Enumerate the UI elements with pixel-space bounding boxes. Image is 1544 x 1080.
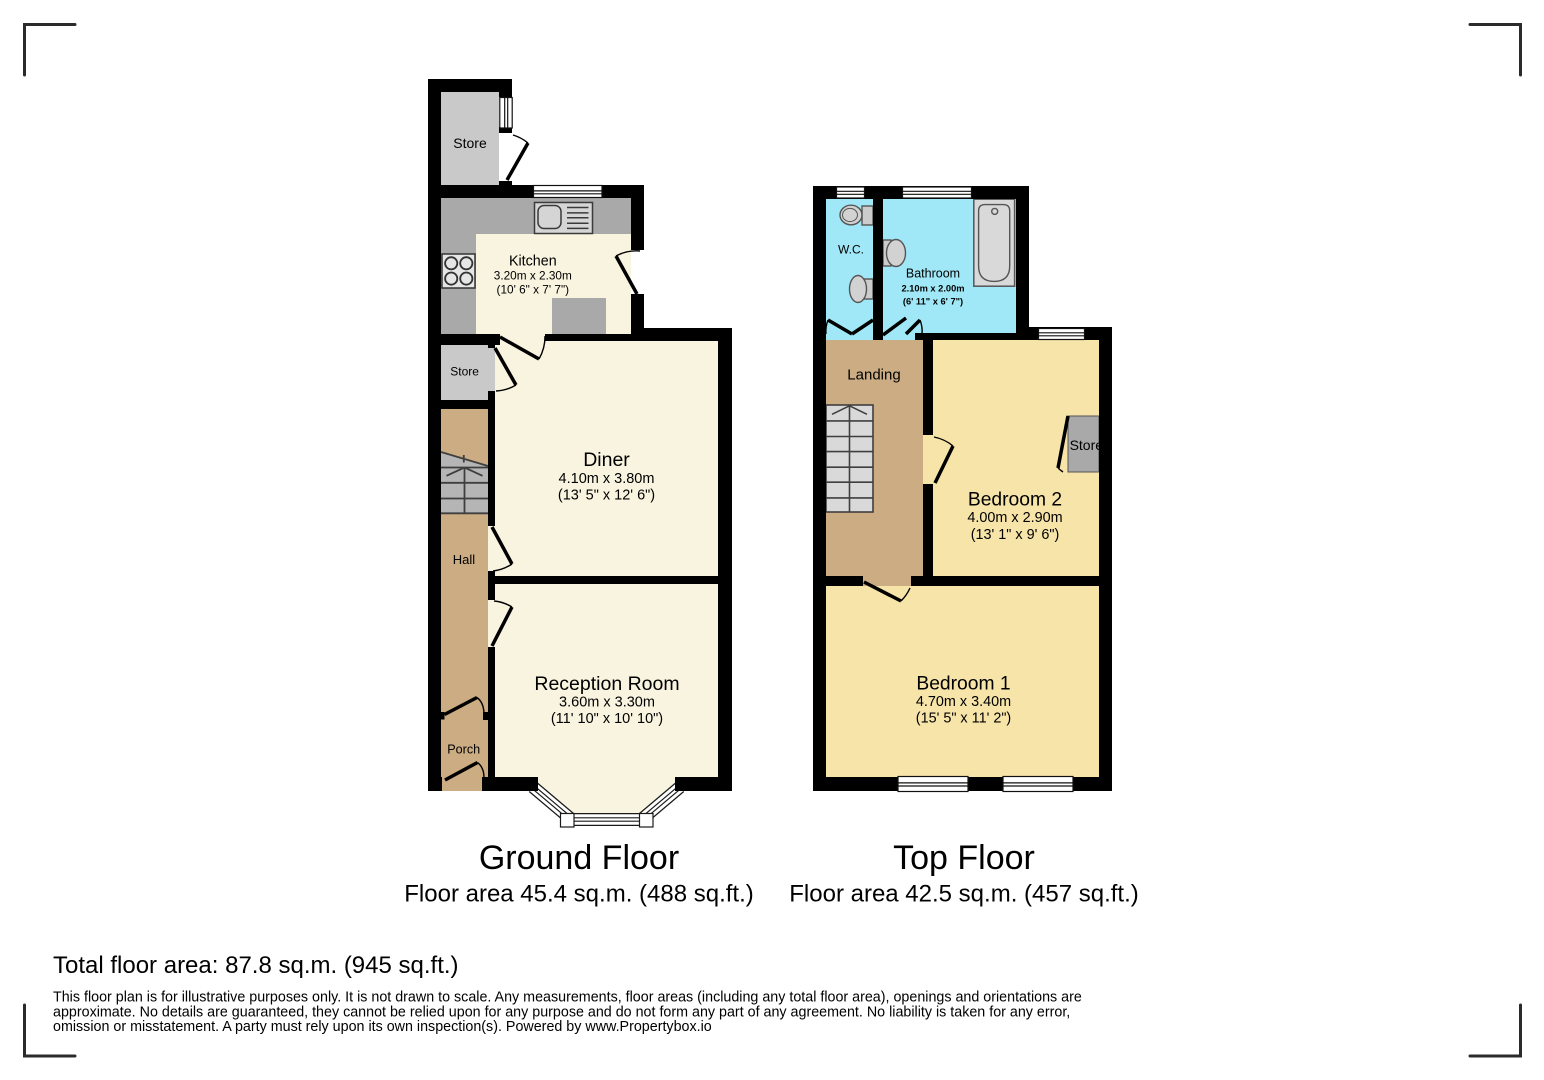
svg-text:(13' 5" x 12' 6"): (13' 5" x 12' 6")	[558, 488, 655, 504]
svg-text:Bedroom 2: Bedroom 2	[968, 490, 1062, 511]
svg-text:3.60m x 3.30m: 3.60m x 3.30m	[559, 694, 655, 710]
svg-text:Porch: Porch	[447, 743, 480, 757]
svg-text:Floor area 42.5 sq.m. (457 sq.: Floor area 42.5 sq.m. (457 sq.ft.)	[789, 881, 1139, 908]
svg-text:(10' 6" x 7' 7"): (10' 6" x 7' 7")	[497, 282, 570, 296]
svg-text:Diner: Diner	[583, 449, 630, 471]
svg-text:Store: Store	[450, 364, 479, 378]
svg-text:Hall: Hall	[453, 552, 476, 567]
svg-text:Bathroom: Bathroom	[906, 267, 960, 281]
svg-text:Landing: Landing	[847, 367, 900, 384]
svg-text:4.70m x 3.40m: 4.70m x 3.40m	[916, 694, 1011, 710]
svg-text:Reception Room: Reception Room	[534, 673, 679, 695]
svg-text:4.00m x 2.90m: 4.00m x 2.90m	[967, 510, 1062, 526]
svg-text:Floor area 45.4 sq.m. (488 sq.: Floor area 45.4 sq.m. (488 sq.ft.)	[404, 881, 754, 908]
svg-text:Ground Floor: Ground Floor	[479, 839, 679, 877]
svg-text:(13' 1" x 9' 6"): (13' 1" x 9' 6")	[971, 527, 1060, 543]
svg-text:Kitchen: Kitchen	[509, 254, 557, 270]
svg-text:omission or misstatement. A pa: omission or misstatement. A party must r…	[53, 1019, 712, 1035]
svg-text:approximate. No details are gu: approximate. No details are guaranteed, …	[53, 1004, 1070, 1020]
svg-text:Total floor area: 87.8 sq.m. (: Total floor area: 87.8 sq.m. (945 sq.ft.…	[53, 952, 459, 979]
svg-text:Store: Store	[1070, 437, 1104, 453]
svg-text:3.20m x 2.30m: 3.20m x 2.30m	[494, 269, 572, 283]
svg-text:Bedroom 1: Bedroom 1	[916, 674, 1010, 695]
svg-text:Store: Store	[453, 135, 487, 151]
svg-text:2.10m x 2.00m: 2.10m x 2.00m	[901, 284, 964, 294]
svg-text:(11' 10" x 10' 10"): (11' 10" x 10' 10")	[551, 711, 663, 727]
svg-text:(6' 11" x 6' 7"): (6' 11" x 6' 7")	[903, 296, 963, 306]
svg-text:(15' 5" x 11' 2"): (15' 5" x 11' 2")	[916, 710, 1011, 726]
svg-text:This floor plan is for illustr: This floor plan is for illustrative purp…	[53, 990, 1082, 1006]
svg-text:W.C.: W.C.	[838, 243, 864, 257]
svg-text:4.10m x 3.80m: 4.10m x 3.80m	[559, 471, 655, 487]
svg-text:Top Floor: Top Floor	[893, 839, 1035, 877]
